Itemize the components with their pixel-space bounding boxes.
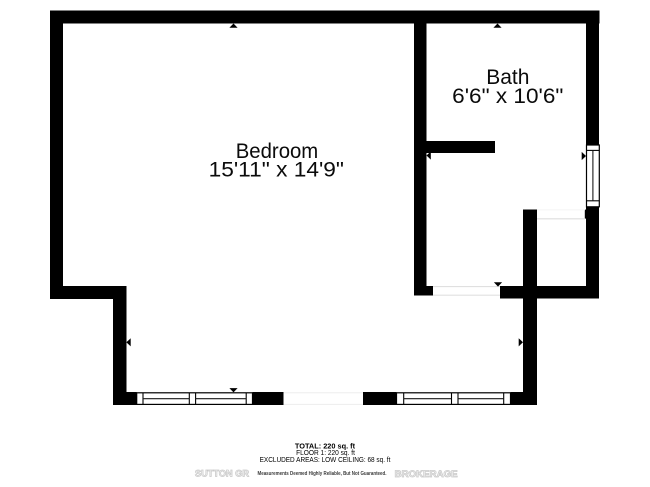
svg-text:15'11" x 14'9": 15'11" x 14'9" <box>209 157 344 181</box>
svg-text:6'6" x 10'6": 6'6" x 10'6" <box>452 84 563 108</box>
svg-text:EXCLUDED AREAS: LOW CEILING: 6: EXCLUDED AREAS: LOW CEILING: 68 sq. ft <box>260 455 392 464</box>
svg-text:BROKERAGE: BROKERAGE <box>395 469 458 479</box>
svg-text:Measurements Deemed Highly Rel: Measurements Deemed Highly Reliable, But… <box>258 471 387 477</box>
svg-text:SUTTON GR: SUTTON GR <box>195 469 250 479</box>
